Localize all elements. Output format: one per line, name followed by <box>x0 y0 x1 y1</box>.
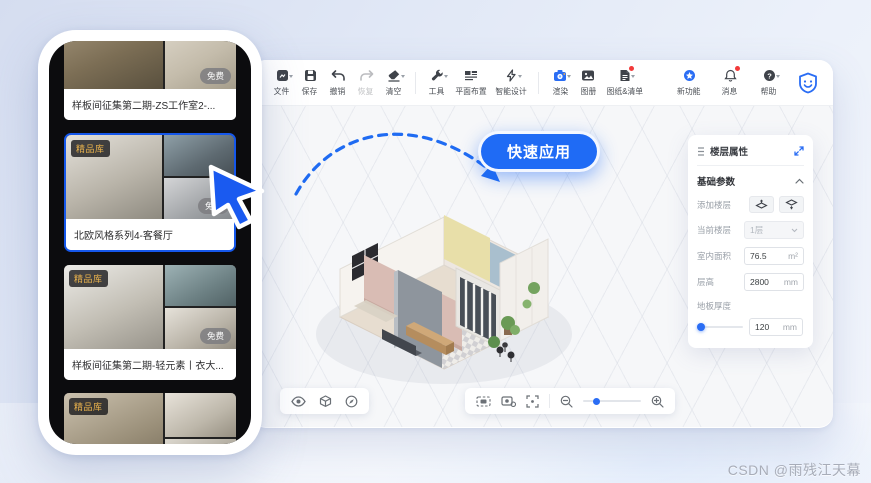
card-thumbnails: 免费 <box>64 41 236 89</box>
smart-design-button[interactable]: 智能设计 <box>491 69 531 97</box>
add-floor-below-button[interactable] <box>779 196 804 213</box>
redo-icon <box>359 69 374 83</box>
floor-height-input[interactable]: 2800 mm <box>744 273 804 291</box>
current-floor-select[interactable]: 1层 <box>744 221 804 239</box>
panel-title: 楼层属性 <box>710 144 789 158</box>
quick-apply-button[interactable]: 快速应用 <box>478 131 600 172</box>
album-button[interactable]: 图册 <box>574 69 602 97</box>
page: 免费 样板间征集第二期-ZS工作室2-... 精品库 免费 北欧风格系 <box>0 0 871 483</box>
redo-button[interactable]: 恢复 <box>352 69 380 97</box>
floor-thickness-slider[interactable] <box>697 326 743 328</box>
design-canvas[interactable]: 快速应用 楼层属性 基础参数 添加楼层 <box>252 106 833 427</box>
svg-text:?: ? <box>767 71 772 80</box>
drawings-list-button[interactable]: 图纸&清单 <box>602 69 648 97</box>
floor-properties-panel: 楼层属性 基础参数 添加楼层 <box>688 135 813 348</box>
room-photo <box>165 439 236 444</box>
card-thumbnails: 精品库 <box>64 393 236 444</box>
drag-handle-icon[interactable] <box>697 147 705 156</box>
phone-mockup: 免费 样板间征集第二期-ZS工作室2-... 精品库 免费 北欧风格系 <box>38 30 262 455</box>
indoor-area-label: 室内面积 <box>697 250 744 262</box>
wrench-icon <box>431 69 444 83</box>
tools-button[interactable]: 工具 <box>423 69 451 97</box>
card-title: 样板间征集第二期-轻元素丨衣大... <box>64 349 236 380</box>
floorplan-layout-button[interactable]: 平面布置 <box>451 69 491 97</box>
section-title: 基础参数 <box>697 174 795 188</box>
room-photo <box>64 41 163 89</box>
lightning-icon <box>505 69 518 83</box>
add-floor-above-icon <box>755 199 768 210</box>
app-window: 文件 保存 撤销 恢复 清空 工具 <box>252 60 833 428</box>
focus-fit-icon[interactable] <box>526 395 539 408</box>
compass-icon[interactable] <box>345 395 358 408</box>
toolbar-separator <box>415 72 416 94</box>
template-card-list: 免费 样板间征集第二期-ZS工作室2-... 精品库 免费 北欧风格系 <box>49 41 251 444</box>
floor-thickness-label: 地板厚度 <box>697 300 804 312</box>
document-icon <box>619 69 631 83</box>
template-card[interactable]: 精品库 免费 样板间征集第二期-轻元素丨衣大... <box>64 265 236 380</box>
card-thumbnails: 精品库 免费 <box>64 265 236 349</box>
zoom-in-icon[interactable] <box>651 395 664 408</box>
save-button[interactable]: 保存 <box>296 69 324 97</box>
zoom-out-icon[interactable] <box>560 395 573 408</box>
cursor-arrow-icon <box>206 160 268 232</box>
3d-view-cube-icon[interactable] <box>319 395 332 408</box>
messages-button[interactable]: 消息 <box>716 69 744 97</box>
new-features-icon <box>683 69 696 83</box>
view-tools-left <box>280 388 369 414</box>
zoom-slider[interactable] <box>583 400 641 402</box>
album-icon <box>581 69 595 83</box>
shield-smiley-logo-icon <box>797 72 819 94</box>
expand-panel-icon[interactable] <box>794 146 804 156</box>
render-camera-icon <box>553 69 567 83</box>
notification-dot <box>735 66 740 71</box>
indoor-area-input[interactable]: 76.5 m² <box>744 247 804 265</box>
watermark: CSDN @雨残江天幕 <box>728 460 861 480</box>
new-features-button[interactable]: 新功能 <box>673 69 705 97</box>
add-floor-above-button[interactable] <box>749 196 774 213</box>
app-logo[interactable] <box>797 72 819 94</box>
clear-button[interactable]: 清空 <box>380 69 408 97</box>
template-card[interactable]: 精品库 <box>64 393 236 444</box>
question-icon: ? <box>763 69 776 83</box>
camera-settings-icon[interactable] <box>501 395 516 407</box>
premium-badge: 精品库 <box>69 270 108 287</box>
free-badge: 免费 <box>200 328 231 344</box>
phone-screen: 免费 样板间征集第二期-ZS工作室2-... 精品库 免费 北欧风格系 <box>49 41 251 444</box>
template-card[interactable]: 免费 样板间征集第二期-ZS工作室2-... <box>64 41 236 120</box>
add-floor-below-icon <box>785 199 798 210</box>
visibility-eye-icon[interactable] <box>291 396 306 407</box>
notification-dot <box>629 66 634 71</box>
floor-thickness-input[interactable]: 120 mm <box>749 318 803 336</box>
file-button[interactable]: 文件 <box>268 69 296 97</box>
undo-icon <box>331 69 346 83</box>
floor-height-label: 层高 <box>697 276 744 288</box>
eraser-icon <box>387 69 401 83</box>
undo-button[interactable]: 撤销 <box>324 69 352 97</box>
free-badge: 免费 <box>200 68 231 84</box>
chevron-down-icon <box>791 228 798 233</box>
bell-icon <box>724 69 737 83</box>
toolbar-separator <box>538 72 539 94</box>
chevron-up-icon[interactable] <box>795 178 804 184</box>
save-icon <box>304 69 317 83</box>
premium-badge: 精品库 <box>69 398 108 415</box>
help-button[interactable]: ? 帮助 <box>755 69 783 97</box>
current-floor-label: 当前楼层 <box>697 224 744 236</box>
room-photo <box>165 393 236 437</box>
card-title: 样板间征集第二期-ZS工作室2-... <box>64 89 236 120</box>
main-toolbar: 文件 保存 撤销 恢复 清空 工具 <box>252 60 833 106</box>
camera-view-icon[interactable] <box>476 395 491 407</box>
premium-badge: 精品库 <box>71 140 110 157</box>
layout-grid-icon <box>464 69 478 83</box>
file-icon <box>276 69 289 83</box>
room-photo <box>165 265 236 306</box>
add-floor-label: 添加楼层 <box>697 199 749 211</box>
render-button[interactable]: 渲染 <box>546 69 574 97</box>
view-tools-right <box>465 388 675 414</box>
